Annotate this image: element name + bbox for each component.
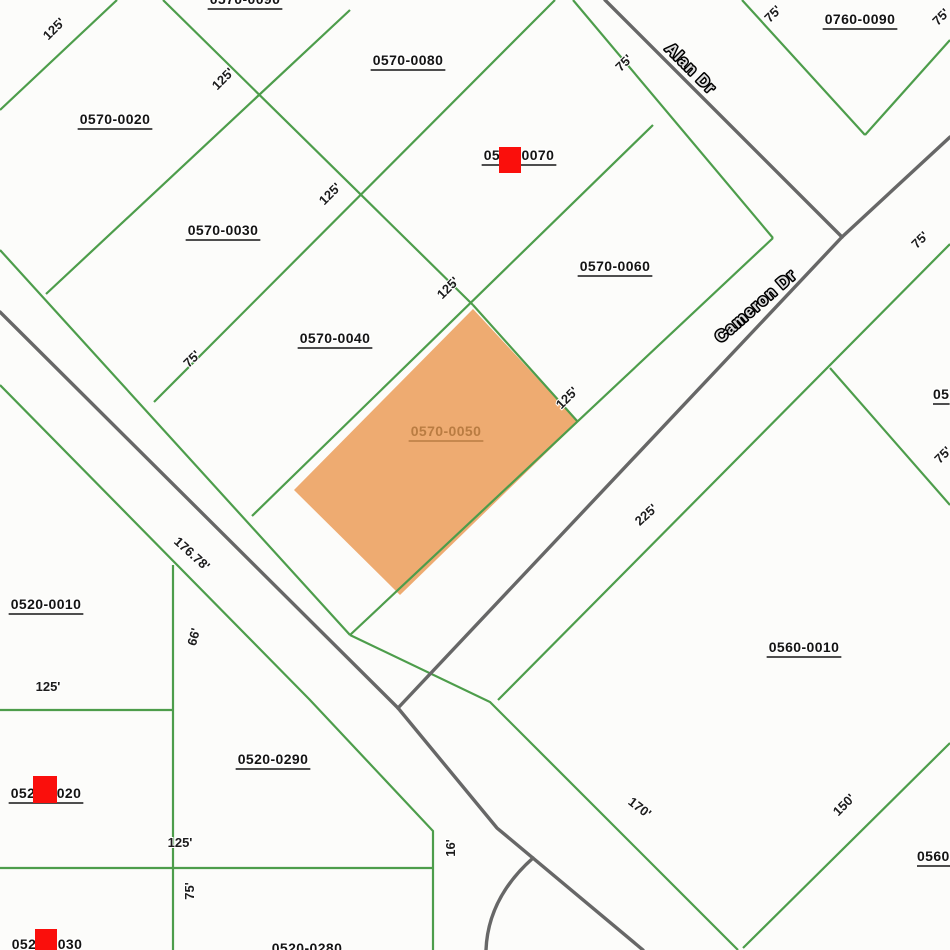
dimension-label: 75' [182, 882, 197, 900]
parcel-id-label[interactable]: 0520-0290 [238, 751, 309, 767]
parcel-id-label[interactable]: 0570-0020 [80, 111, 151, 127]
parcel-id-label[interactable]: 0560- [917, 848, 950, 864]
dimension-label: 16' [443, 839, 458, 857]
parcel-id-label[interactable]: 0760-0090 [825, 11, 896, 27]
result-marker-square [35, 929, 57, 950]
parcel-id-label[interactable]: 0520-0010 [11, 596, 82, 612]
dimension-label: 125' [168, 835, 193, 850]
parcel-id-label[interactable]: 0570-0090 [210, 0, 281, 7]
parcel-id-label[interactable]: 05 [933, 386, 949, 402]
result-marker-square [499, 147, 521, 173]
dimension-label: 125' [36, 679, 61, 694]
result-marker-square [33, 776, 57, 803]
parcel-id-label[interactable]: 0570-0040 [300, 330, 371, 346]
parcel-map-canvas[interactable]: Alan DrCameron Dr 125'125'125'125'125'75… [0, 0, 950, 950]
parcel-id-label[interactable]: 0570-0060 [580, 258, 651, 274]
parcel-id-label[interactable]: 0520-0280 [272, 940, 343, 950]
parcel-map-viewport[interactable]: Alan DrCameron Dr 125'125'125'125'125'75… [0, 0, 950, 950]
parcel-id-label[interactable]: 0570-0030 [188, 222, 259, 238]
parcel-id-label[interactable]: 0570-0050 [411, 423, 482, 439]
parcel-id-label[interactable]: 0560-0010 [769, 639, 840, 655]
parcel-id-label[interactable]: 0570-0080 [373, 52, 444, 68]
